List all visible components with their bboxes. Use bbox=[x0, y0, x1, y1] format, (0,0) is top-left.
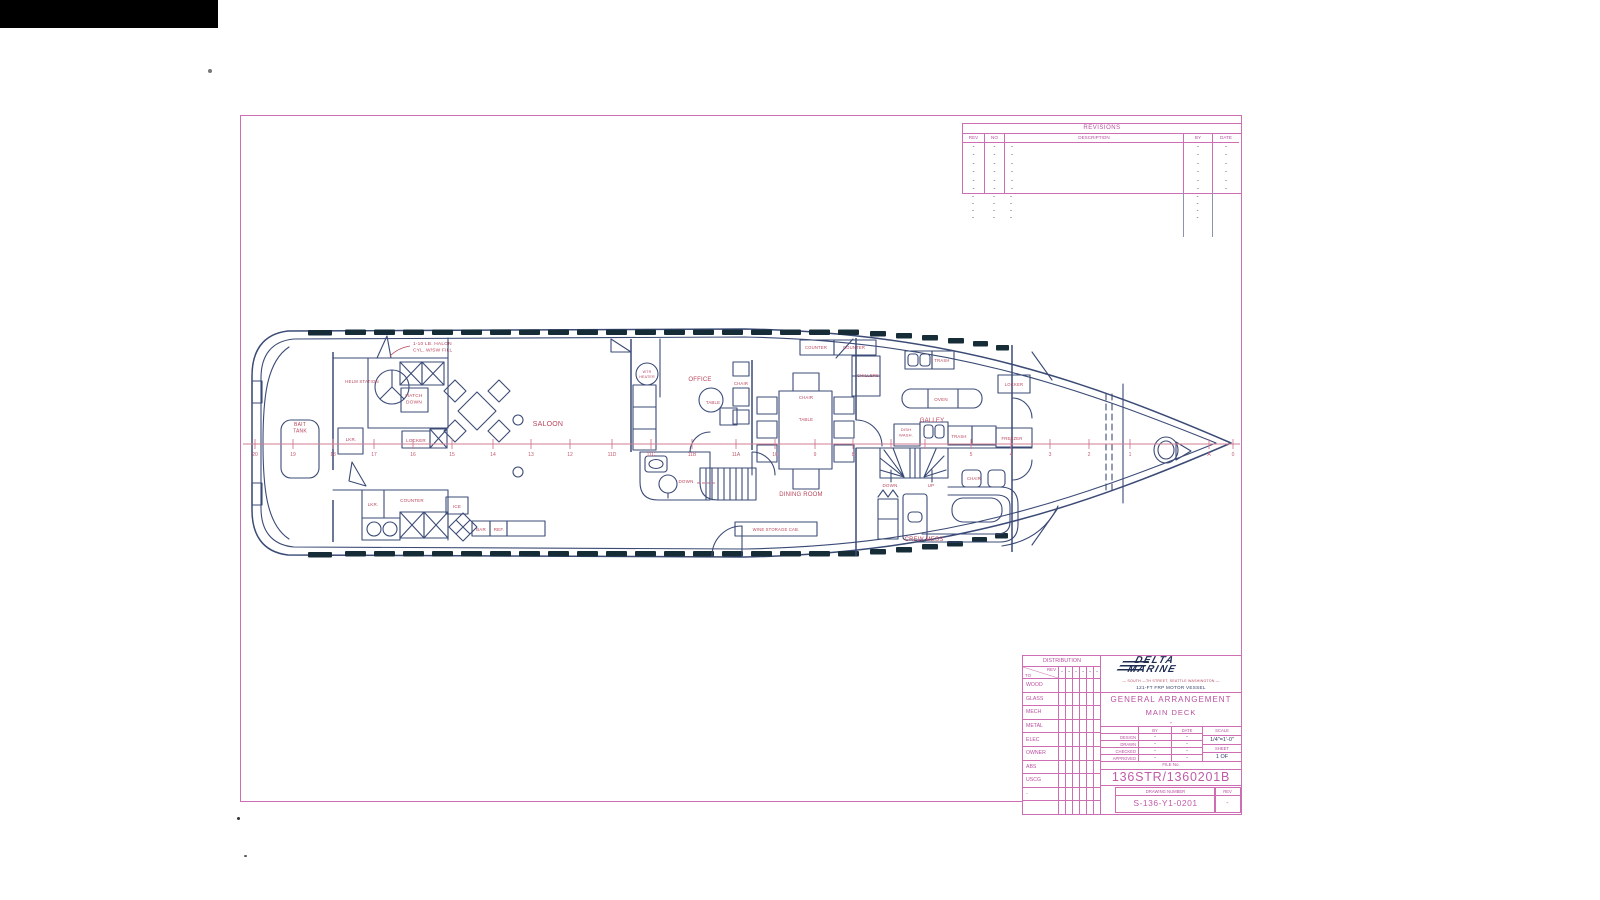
window-glyph bbox=[780, 330, 801, 336]
window-glyph bbox=[722, 330, 743, 336]
room-label: SALOON bbox=[533, 421, 563, 428]
room-label: TABLE bbox=[706, 400, 720, 405]
drawing-number-box: DRAWING NUMBER S-136-Y1-0201 bbox=[1115, 787, 1216, 813]
frame-number: 1 bbox=[1129, 452, 1132, 458]
frame-number: 19 bbox=[290, 452, 296, 458]
frame-number: 20 bbox=[252, 452, 258, 458]
window-glyph bbox=[345, 330, 366, 336]
revision-row: ----- bbox=[963, 143, 1241, 151]
room-label: OFFICE bbox=[688, 377, 711, 383]
room-label: ICE bbox=[453, 504, 461, 509]
distribution-title: DISTRIBUTION bbox=[1023, 656, 1101, 667]
col-rev: REV bbox=[963, 134, 985, 143]
room-label: COUNTER bbox=[400, 498, 424, 503]
frame-number: 16 bbox=[410, 452, 416, 458]
window-glyph bbox=[606, 551, 627, 557]
frame-number: 10 bbox=[772, 452, 778, 458]
window-glyph bbox=[374, 551, 395, 557]
signoff-labels: DESIGNDRAWNCHECKEDAPPROVED bbox=[1101, 727, 1139, 762]
window-glyph bbox=[896, 333, 912, 339]
window-glyph bbox=[635, 551, 656, 557]
halon-leader-line bbox=[390, 346, 410, 356]
window-glyph bbox=[308, 552, 332, 558]
company-logo: DELTA MARINE bbox=[1101, 656, 1241, 680]
room-label: TABLE bbox=[799, 417, 813, 422]
col-no: NO bbox=[985, 134, 1005, 143]
revision-row: ----- bbox=[963, 151, 1241, 159]
scan-artifact-dot bbox=[244, 855, 247, 857]
revision-row: ----- bbox=[963, 168, 1241, 176]
frame-number: 4 bbox=[1010, 452, 1013, 458]
drawing-title-line1: GENERAL ARRANGEMENT bbox=[1101, 695, 1241, 704]
window-glyph bbox=[664, 330, 685, 336]
table-rule bbox=[1212, 192, 1213, 237]
room-label: CHILLERS bbox=[857, 373, 879, 378]
signoff-date: DATE---- bbox=[1172, 727, 1203, 762]
frame-number: 11A bbox=[732, 452, 741, 458]
frame-number: 14 bbox=[490, 452, 496, 458]
revision-overflow-row: ---- bbox=[962, 201, 1240, 208]
scanned-drawing-page: REVISIONS REV NO DESCRIPTION BY DATE ---… bbox=[0, 0, 1600, 900]
signoff-by: BY---- bbox=[1139, 727, 1172, 762]
room-label: CHAIR bbox=[799, 395, 813, 400]
rev-value: - bbox=[1215, 796, 1240, 811]
room-label: UP bbox=[928, 483, 935, 488]
drawing-number-label: DRAWING NUMBER bbox=[1116, 788, 1215, 796]
deck-plan: 20191817161514131211D11C11B11A109854321A… bbox=[240, 295, 1245, 585]
revision-row: ----- bbox=[963, 160, 1241, 168]
room-label: BAITTANK bbox=[293, 422, 307, 435]
window-glyph bbox=[635, 330, 656, 336]
window-glyph bbox=[461, 551, 482, 557]
company-address: — SOUTH —TH STREET, SEATTLE WASHINGTON — bbox=[1101, 679, 1241, 683]
frame-number: 11D bbox=[608, 452, 617, 458]
distribution-row: METAL bbox=[1023, 720, 1101, 734]
revision-row: ----- bbox=[963, 177, 1241, 185]
window-glyph bbox=[490, 551, 511, 557]
distribution-rows: WOODGLASSMECHMETALELECOWNERABSUSCG- bbox=[1023, 679, 1101, 814]
frame-number: 5 bbox=[970, 452, 973, 458]
distribution-row: USCG bbox=[1023, 774, 1101, 788]
table-rule bbox=[1183, 192, 1184, 237]
room-label: CHAIR bbox=[734, 381, 748, 386]
window-glyph bbox=[519, 551, 540, 557]
drawing-number-strip: DRAWING NUMBER S-136-Y1-0201 REV - bbox=[1101, 785, 1241, 813]
window-glyph bbox=[922, 335, 938, 341]
frame-number: 11C bbox=[647, 452, 656, 458]
window-glyph bbox=[973, 341, 988, 347]
window-glyph bbox=[722, 551, 743, 557]
room-label: 1-10 LB. HALONCYL. W/SW FILL bbox=[413, 341, 452, 353]
room-label: TRASH bbox=[951, 434, 966, 439]
centerline-and-frames: 20191817161514131211D11C11B11A109854321A… bbox=[243, 439, 1240, 458]
scan-artifact-dot bbox=[237, 817, 240, 820]
col-description: DESCRIPTION bbox=[1005, 134, 1184, 143]
window-glyph bbox=[490, 330, 511, 336]
room-label: GALLEY bbox=[920, 418, 945, 424]
frame-number: 13 bbox=[528, 452, 534, 458]
room-label: TRASH bbox=[934, 358, 949, 363]
distribution-row: GLASS bbox=[1023, 693, 1101, 707]
scan-artifact-dot bbox=[208, 69, 212, 73]
revision-overflow-row: ---- bbox=[962, 208, 1240, 215]
logo-line2: MARINE bbox=[1127, 666, 1178, 675]
window-glyph bbox=[751, 551, 772, 557]
room-label: FREEZER bbox=[1002, 436, 1023, 441]
room-label: HELM STATION bbox=[345, 379, 379, 384]
revisions-header: REV NO DESCRIPTION BY DATE bbox=[963, 134, 1241, 143]
window-glyph bbox=[870, 331, 886, 337]
window-glyph bbox=[809, 551, 830, 557]
room-label: DISHWASH. bbox=[899, 427, 913, 438]
window-glyph bbox=[606, 330, 627, 336]
title-block: DELTA MARINE — SOUTH —TH STREET, SEATTLE… bbox=[1100, 655, 1242, 815]
window-glyph bbox=[870, 549, 886, 555]
room-label: DOWN bbox=[678, 479, 693, 484]
revisions-table: REVISIONS REV NO DESCRIPTION BY DATE ---… bbox=[962, 123, 1242, 194]
room-label: LKR. bbox=[368, 502, 379, 507]
rev-box: REV - bbox=[1214, 787, 1241, 813]
room-label: REF. bbox=[494, 527, 505, 532]
window-glyph bbox=[577, 551, 598, 557]
frame-number: 9 bbox=[814, 452, 817, 458]
window-glyph bbox=[548, 551, 569, 557]
window-glyph bbox=[403, 551, 424, 557]
window-glyph bbox=[809, 330, 830, 336]
room-label: OVEN bbox=[934, 397, 948, 402]
to-rev-diagonal-cell: TO REV bbox=[1023, 667, 1059, 678]
frame-number: 17 bbox=[371, 452, 377, 458]
revision-overflow-row: ---- bbox=[962, 215, 1240, 222]
revision-row: ----- bbox=[963, 185, 1241, 193]
window-glyph bbox=[345, 551, 366, 557]
room-label: CHAIR bbox=[967, 476, 981, 481]
file-number: 136STR/1360201B bbox=[1101, 769, 1241, 786]
revisions-overflow-rows: ---------------- bbox=[962, 194, 1240, 222]
window-glyph bbox=[403, 330, 424, 336]
frame-number: 3 bbox=[1049, 452, 1052, 458]
frame-number: 12 bbox=[567, 452, 573, 458]
window-glyph bbox=[896, 547, 912, 553]
window-glyph bbox=[664, 551, 685, 557]
signoff-table: DESIGNDRAWNCHECKEDAPPROVEDBY----DATE----… bbox=[1101, 726, 1241, 762]
room-label: CREW MESS bbox=[905, 537, 944, 543]
room-label: WTRHEATER bbox=[639, 370, 655, 379]
distribution-row: OWNER bbox=[1023, 747, 1101, 761]
drawing-number-value: S-136-Y1-0201 bbox=[1116, 796, 1215, 811]
distribution-row: WOOD bbox=[1023, 679, 1101, 693]
distribution-row: ABS bbox=[1023, 761, 1101, 775]
window-glyph bbox=[780, 551, 801, 557]
col-date: DATE bbox=[1213, 134, 1239, 143]
revisions-title: REVISIONS bbox=[963, 124, 1241, 134]
col-by: BY bbox=[1184, 134, 1213, 143]
window-glyph bbox=[948, 338, 964, 344]
window-glyph bbox=[308, 330, 332, 336]
room-label: LKR. bbox=[346, 437, 357, 442]
window-glyph bbox=[922, 544, 938, 550]
room-label: DINING ROOM bbox=[779, 492, 823, 498]
revisions-rows: ------------------------------ bbox=[963, 143, 1241, 193]
window-glyph bbox=[432, 551, 453, 557]
rev-label: REV bbox=[1215, 788, 1240, 796]
window-glyph bbox=[432, 330, 453, 336]
window-glyph bbox=[577, 330, 598, 336]
room-label: DOWN bbox=[882, 483, 897, 488]
frame-number: 18 bbox=[330, 452, 336, 458]
distribution-table: DISTRIBUTION TO REV ------ WOODGLASSMECH… bbox=[1022, 655, 1102, 815]
scan-artifact-bar bbox=[0, 0, 218, 28]
room-label: LOCKER bbox=[1005, 382, 1023, 387]
frame-number: A bbox=[1207, 452, 1211, 458]
distribution-row bbox=[1023, 801, 1101, 814]
frame-number: 0 bbox=[1232, 452, 1235, 458]
frame-number: 11B bbox=[688, 452, 697, 458]
signoff-scale: SCALE1/4"=1'-0"SHEET1 OF bbox=[1203, 727, 1241, 762]
window-glyph bbox=[374, 330, 395, 336]
window-glyph bbox=[461, 330, 482, 336]
room-label: LOCKER bbox=[406, 438, 426, 443]
frame-number: 2 bbox=[1088, 452, 1091, 458]
window-glyph bbox=[838, 330, 859, 336]
window-glyph bbox=[693, 330, 714, 336]
window-glyph bbox=[548, 330, 569, 336]
drawing-title: GENERAL ARRANGEMENT MAIN DECK - bbox=[1101, 692, 1241, 727]
distribution-header-row: TO REV ------ bbox=[1023, 667, 1101, 679]
window-glyph bbox=[519, 330, 540, 336]
room-label: COUNTER bbox=[843, 345, 865, 350]
window-glyph bbox=[996, 345, 1009, 351]
drawing-title-line2: MAIN DECK bbox=[1101, 708, 1241, 717]
frame-number: 8 bbox=[852, 452, 855, 458]
distribution-row: MECH bbox=[1023, 706, 1101, 720]
room-label: HATCHDOWN bbox=[405, 393, 423, 405]
window-glyph bbox=[751, 330, 772, 336]
window-glyph bbox=[693, 551, 714, 557]
distribution-row: ELEC bbox=[1023, 733, 1101, 747]
revision-overflow-row: ---- bbox=[962, 194, 1240, 201]
room-label: BAR bbox=[476, 527, 486, 532]
room-label: WINE STORAGE CAB. bbox=[753, 527, 800, 532]
distribution-row: - bbox=[1023, 788, 1101, 802]
frame-number: 15 bbox=[449, 452, 455, 458]
room-label: COUNTER bbox=[805, 345, 827, 350]
hull-outline bbox=[252, 329, 1231, 557]
